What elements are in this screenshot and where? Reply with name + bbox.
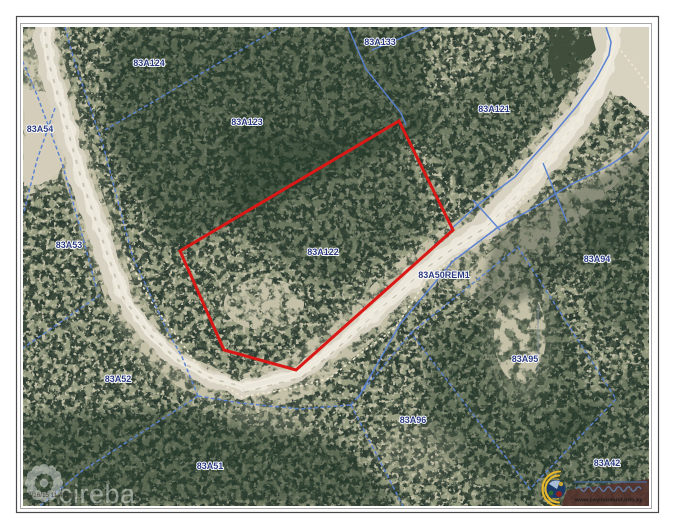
svg-text:83A94: 83A94 <box>584 254 611 264</box>
svg-text:83A42: 83A42 <box>594 458 621 468</box>
svg-text:83A123: 83A123 <box>231 117 263 127</box>
svg-text:www.caymanland.info.ky: www.caymanland.info.ky <box>574 498 643 504</box>
svg-text:9/16/15 11:49 am: 9/16/15 11:49 am <box>28 492 77 499</box>
svg-text:83A133: 83A133 <box>364 37 396 47</box>
svg-text:83A96: 83A96 <box>400 415 427 425</box>
svg-text:83A122: 83A122 <box>307 247 339 257</box>
svg-text:83A54: 83A54 <box>27 124 54 134</box>
svg-text:83A50REM1: 83A50REM1 <box>418 270 470 280</box>
svg-text:83A52: 83A52 <box>105 374 132 384</box>
svg-text:83A95: 83A95 <box>512 354 539 364</box>
svg-text:83A53: 83A53 <box>56 240 83 250</box>
svg-text:83A124: 83A124 <box>133 58 165 68</box>
svg-text:83A51: 83A51 <box>197 461 224 471</box>
svg-text:83A121: 83A121 <box>478 104 510 114</box>
